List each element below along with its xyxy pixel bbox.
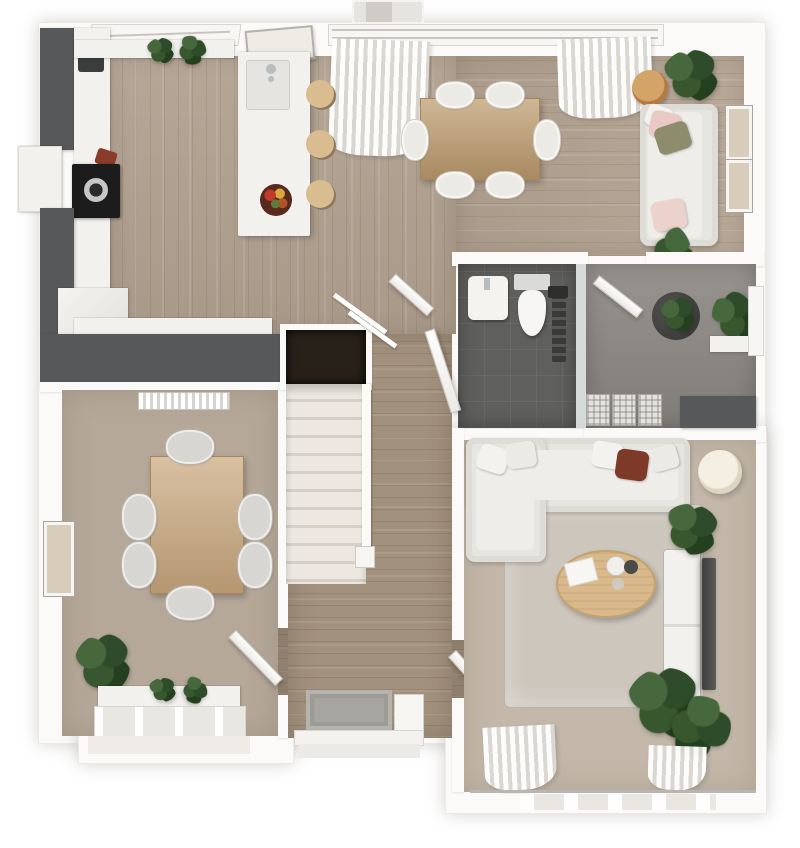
fruit-bowl	[260, 184, 292, 216]
living-curtain-right	[647, 745, 707, 791]
bay-window-box	[18, 146, 62, 212]
entry-side-window	[748, 286, 764, 356]
tall-unit	[40, 28, 74, 150]
rust-throw	[614, 448, 650, 482]
coffee-table-candle	[612, 578, 624, 590]
family-window-ledge	[88, 736, 250, 754]
family-chair-left-1	[122, 494, 156, 540]
sill-plant-1	[146, 38, 174, 64]
family-window	[94, 706, 246, 740]
wall-family-hall-lower	[278, 695, 288, 738]
family-chair-left-2	[122, 542, 156, 588]
family-picture-frame	[44, 522, 74, 596]
coffee-table-mug	[624, 560, 638, 574]
front-door-panel	[394, 694, 424, 732]
entry-pot-plant	[660, 298, 694, 332]
family-chair-right-2	[238, 542, 272, 588]
stair-newel-post	[355, 546, 375, 568]
bar-stool-2	[306, 130, 334, 158]
shower-fitting	[548, 286, 568, 298]
family-corner-plant	[74, 634, 130, 694]
patio-window-top-line1	[332, 29, 658, 31]
stair-void	[286, 330, 366, 384]
family-table	[150, 456, 244, 594]
wall-hall-living-upper	[452, 428, 464, 640]
dining-chair-bottom-1	[436, 172, 474, 198]
family-chair-top	[166, 430, 214, 464]
wc-glass-screen	[576, 264, 586, 428]
dining-chair-top-2	[486, 82, 524, 108]
dining-chair-left	[402, 120, 428, 160]
pan-on-hob	[84, 178, 108, 202]
wall-hall-living-lower	[452, 698, 464, 792]
staircase-treads	[286, 384, 366, 584]
family-sill-plant-1	[148, 678, 176, 702]
patio-frame-shadow	[520, 794, 716, 810]
side-table-round	[632, 70, 668, 106]
patio-glass-line	[470, 790, 756, 793]
doormat	[306, 690, 392, 730]
toilet-cistern	[514, 274, 550, 290]
floor-lamp	[698, 450, 742, 494]
dining-chair-top-1	[436, 82, 474, 108]
floor-plan-render	[0, 0, 800, 848]
picture-frame-2	[726, 160, 752, 212]
worktop-bottom-L	[40, 334, 282, 384]
bar-stool-3	[306, 180, 334, 208]
sofa-plant-top	[662, 50, 718, 102]
stair-banister	[362, 384, 371, 550]
wall-tv	[702, 558, 716, 690]
storage-basket-3	[638, 394, 662, 426]
coffee-table-bowl	[606, 556, 626, 576]
basin-tap	[484, 278, 490, 290]
family-chair-bottom	[166, 586, 214, 620]
island-tap	[266, 64, 276, 74]
living-curtain-left	[482, 724, 557, 792]
storage-basket-1	[586, 394, 610, 426]
dining-table	[420, 98, 540, 180]
chimney-cap	[366, 2, 392, 22]
family-chair-right-1	[238, 494, 272, 540]
dining-chair-right	[534, 120, 560, 160]
living-cushion-2	[504, 440, 537, 470]
picture-frame-1	[726, 106, 752, 160]
bar-stool-1	[306, 80, 334, 108]
front-step	[298, 744, 420, 758]
entry-bench	[680, 396, 756, 428]
towel-radiator	[552, 296, 566, 362]
family-doorway-threshold	[278, 628, 288, 695]
dining-chair-bottom-2	[486, 172, 524, 198]
family-radiator	[138, 392, 230, 410]
storage-basket-2	[612, 394, 636, 426]
